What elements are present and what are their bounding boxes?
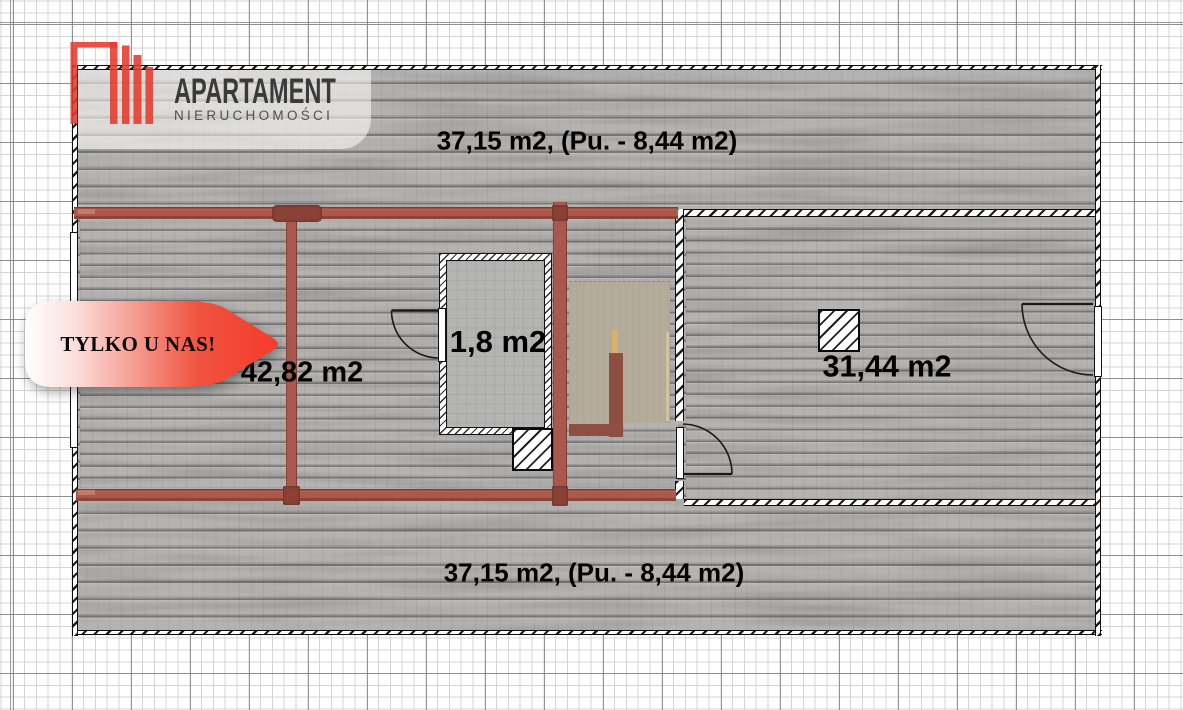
svg-text:TYLKO U NAS!: TYLKO U NAS! (60, 332, 215, 356)
